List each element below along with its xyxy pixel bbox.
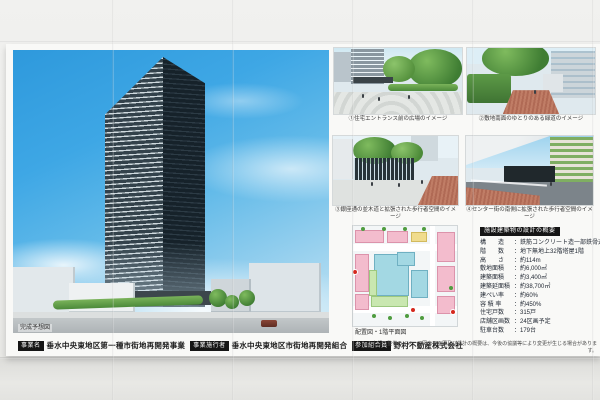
wall-lower-section [0,357,600,400]
thumbnail-2-image [467,48,595,114]
spec-value: 179台 [520,327,536,336]
plaza-pavement [334,92,462,114]
plan-block-pink [387,231,408,243]
person [534,90,536,94]
thumbnail-1-caption: ①住宅エントランス前の広場のイメージ [334,116,462,123]
spec-label: 構 造 [480,239,514,248]
spec-row: 敷地面積：約6,000㎡ [480,265,599,274]
thumbnail-4-image [466,136,593,205]
thumbnail-2-caption: ②敷地南面のゆとりのある緑道のイメージ [467,116,595,123]
tree [209,289,227,307]
plan-tree [382,227,386,231]
plan-tree [449,286,453,290]
spec-label: 容 積 率 [480,301,514,310]
tree [482,48,549,76]
spec-value: 315戸 [520,309,536,318]
glass-pavilion [504,166,555,181]
plan-tree [405,314,409,318]
spec-value: 約3,400㎡ [520,274,547,283]
plan-entrance-marker [353,270,357,274]
spec-row: 住宅戸数：315戸 [480,309,599,318]
person [550,182,552,186]
entrance-canopy [353,77,393,83]
spec-row: 高 さ：約114m [480,257,599,266]
tree [239,290,255,306]
spec-label: 建築延面積 [480,283,514,292]
project-name-item: 事業名 垂水中央東地区第一種市街地再開発事業 [18,340,185,351]
spec-label: 建築面積 [480,274,514,283]
person [421,180,423,184]
plan-block-pink [355,230,384,243]
wall-seam [0,41,600,43]
thumbnail-4-caption: ④センター街の南側に拡張された歩行者空間のイメージ [466,207,593,221]
spec-value: 鉄筋コンクリート造一部鉄骨造 [520,239,600,248]
plan-block-pink [355,254,369,292]
spec-table-title: 施設建築物の設計の概要 [480,227,560,236]
plan-road [430,226,435,326]
person [378,97,380,101]
spec-table: 構 造：鉄筋コンクリート造一部鉄骨造 階 数：地下無地上32階塔屋1階 高 さ：… [480,239,599,336]
spec-row: 容 積 率：約450% [480,301,599,310]
disclaimer-note: ※上記の整備のイメージ図や平面図及び設計の概要は、今後の協議等により変更が生じる… [365,341,597,355]
spec-value: 約60% [520,292,538,301]
spec-label: 店舗区画数 [480,318,514,327]
spec-value: 地下無地上32階塔屋1階 [520,248,584,257]
project-executor-item: 事業施行者 垂水中央東地区市街地再開発組合 [190,340,347,351]
spec-row: 建築延面積：約38,700㎡ [480,283,599,292]
thumbnail-3-caption: ③銀座通の並木道と拡張された歩行者空間のイメージ [333,207,458,221]
site-plan-image [353,226,457,326]
project-executor-text: 垂水中央東地区市街地再開発組合 [232,340,348,351]
lowrise-building [249,263,321,313]
spec-row: 店舗区画数：24区画予定 [480,318,599,327]
spec-row: 建築面積：約3,400㎡ [480,274,599,283]
hedge [467,74,511,103]
tree [225,295,239,309]
site-plan-caption: 配置図・1階平面図 [355,329,406,337]
spec-row: 構 造：鉄筋コンクリート造一部鉄骨造 [480,239,599,248]
spec-label: 駐車台数 [480,327,514,336]
thumbnail-3-image [333,136,458,205]
spec-value: 約450% [520,301,541,310]
plan-block-pink [355,294,369,310]
glass-pavilion [354,158,414,180]
plan-tree [420,316,424,320]
spec-value: 約6,000㎡ [520,265,547,274]
person [398,183,400,187]
plan-tree [403,227,407,231]
project-name-badge: 事業名 [18,341,44,351]
spec-value: 約114m [520,257,541,266]
plan-plaza-green [369,270,377,296]
plan-tree [422,227,426,231]
spec-row: 建ぺい率：約60% [480,292,599,301]
spec-label: 建ぺい率 [480,292,514,301]
plan-tree [388,316,392,320]
project-executor-badge: 事業施行者 [190,341,229,351]
plan-entrance-marker [451,310,455,314]
building [334,52,351,82]
thumbnail-1-image [334,48,462,114]
car [261,320,277,327]
main-rendering-caption: 完成予想図 [18,324,52,332]
plan-building-footprint [411,270,428,298]
tree [408,49,462,87]
spec-label: 高 さ [480,257,514,266]
plan-block-pink [437,232,455,262]
spec-row: 階 数：地下無地上32階塔屋1階 [480,248,599,257]
road [13,318,329,333]
spec-label: 住宅戸数 [480,309,514,318]
spec-label: 階 数 [480,248,514,257]
person [371,182,373,186]
wall [543,74,563,91]
spec-row: 駐車台数：179台 [480,327,599,336]
project-name-text: 垂水中央東地区第一種市街地再開発事業 [47,340,186,351]
building [333,139,353,179]
hedge [388,84,458,91]
spec-label: 敷地面積 [480,265,514,274]
plan-tree [372,314,376,318]
signboard-photo: 完成予想図 ①住宅エントランス前の広場のイメージ ②敷地南面のゆとりのある緑道の… [0,0,600,400]
plan-block-yellow [411,232,427,242]
spec-value: 24区画予定 [520,318,551,327]
tower-facade [550,137,593,183]
spec-value: 約38,700㎡ [520,283,550,292]
plan-plaza-green [371,296,408,307]
main-rendering-image [13,50,329,333]
plan-building-footprint [397,252,416,266]
